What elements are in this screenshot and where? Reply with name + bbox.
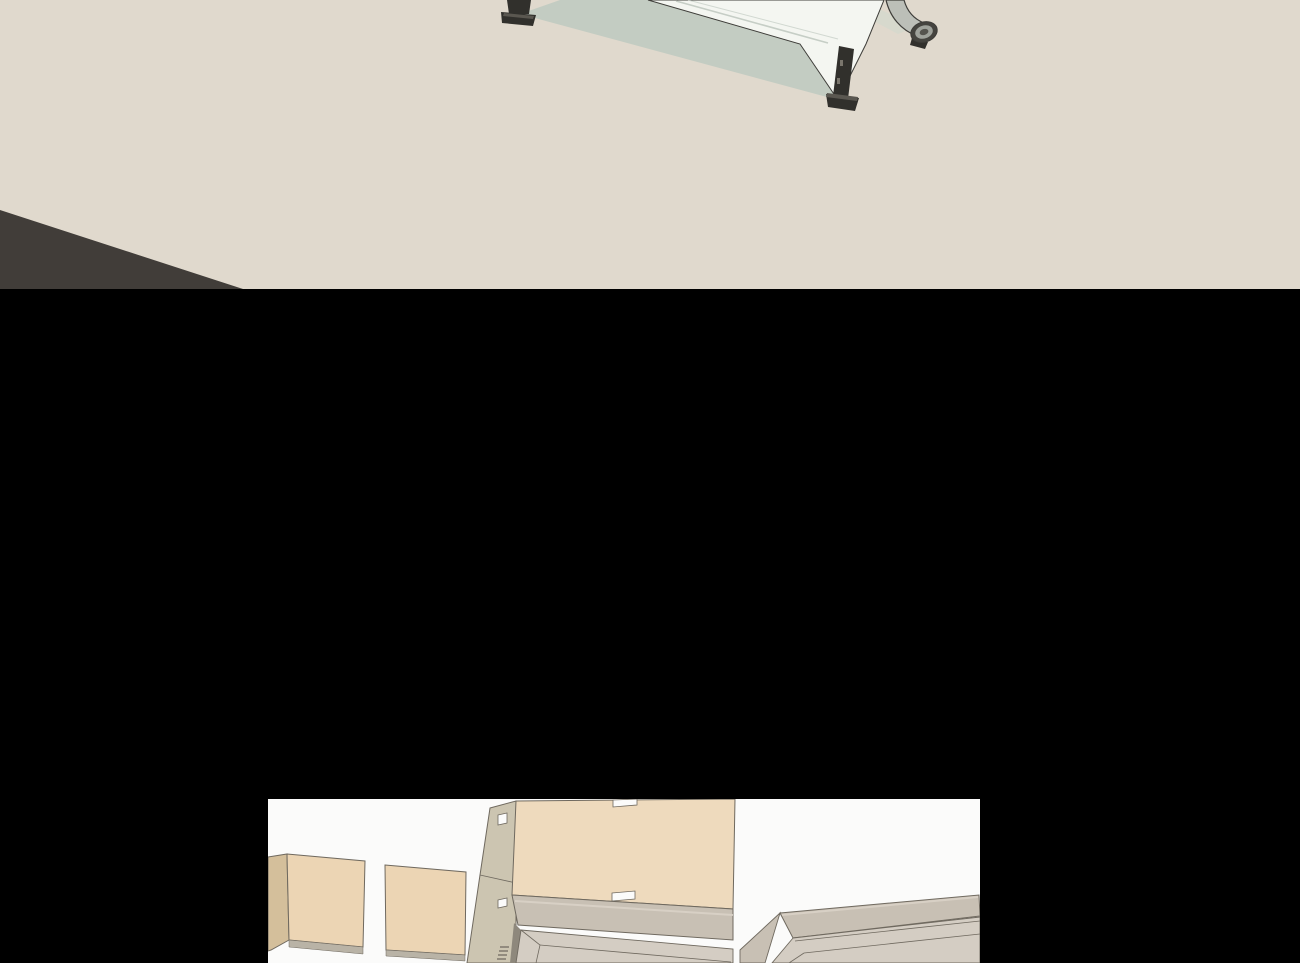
wardrobe-side xyxy=(268,854,289,951)
leg-hole xyxy=(837,78,840,84)
handle-notch-front-bottom xyxy=(612,891,635,901)
panel-room-desk xyxy=(0,0,1300,289)
webtoon-page xyxy=(0,0,1300,963)
handle-notch-side-top xyxy=(498,813,507,825)
desk-leg-left-post xyxy=(507,0,531,14)
leg-hole xyxy=(840,60,843,66)
panel-cabinets xyxy=(268,799,980,963)
wardrobe-door-left xyxy=(287,854,365,947)
wardrobe-door-right xyxy=(385,865,466,955)
cabinet-scene-svg xyxy=(268,799,980,963)
handle-notch-side-mid xyxy=(498,898,507,908)
desk-scene-svg xyxy=(0,0,1300,289)
